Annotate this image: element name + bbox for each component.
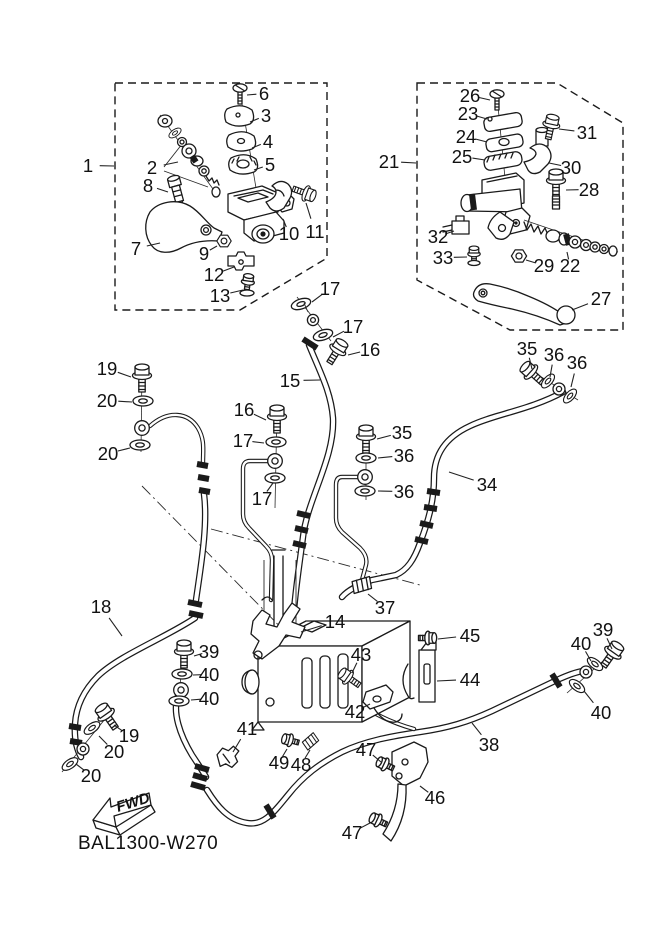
piston-kit-22 (524, 220, 618, 256)
part-number-22: 22 (560, 255, 581, 276)
cap-plate-4 (227, 132, 256, 151)
screw-33 (468, 246, 480, 265)
parts-diagram-canvas: FWD BAL1300-W270 12634587910111213172126… (0, 0, 661, 935)
part-number-18: 18 (91, 596, 112, 617)
part-number-16: 16 (360, 339, 381, 360)
part-number-30: 30 (561, 157, 582, 178)
brake-hose-18 (69, 415, 210, 757)
part-number-43: 43 (351, 644, 372, 665)
part-number-36: 36 (394, 481, 415, 502)
callout-leader-line (118, 372, 131, 377)
callout-leader-line (348, 352, 360, 355)
part-number-47: 47 (342, 822, 363, 843)
parts-diagram-page: FWD BAL1300-W270 12634587910111213172126… (0, 0, 661, 935)
left-banjo-stack-19-20 (130, 364, 153, 452)
callout-leader-line (572, 304, 588, 310)
part-number-9: 9 (199, 243, 209, 264)
part-number-29: 29 (534, 255, 555, 276)
piston-kit (158, 115, 220, 197)
clamp-48 (301, 733, 319, 750)
brake-lever-7 (146, 202, 222, 253)
pivot-nut-9 (217, 235, 231, 247)
part-number-4: 4 (263, 131, 273, 152)
callout-leader-line (210, 246, 217, 250)
part-number-6: 6 (259, 83, 269, 104)
part-number-17: 17 (252, 488, 273, 509)
part-number-5: 5 (265, 154, 275, 175)
reservoir-cap-23 (483, 112, 523, 132)
clamp-41 (216, 744, 243, 770)
bolt-45 (419, 631, 437, 645)
part-number-36: 36 (544, 344, 565, 365)
part-number-17: 17 (343, 316, 364, 337)
holder-bolt-11 (290, 181, 318, 204)
part-number-40: 40 (591, 702, 612, 723)
callout-leader-line (118, 401, 132, 402)
brake-hoses (69, 339, 583, 823)
reservoir-screw-6 (233, 84, 247, 104)
part-number-35: 35 (517, 338, 538, 359)
cap-plate-24 (485, 133, 524, 152)
callout-leader-line (438, 637, 456, 639)
part-number-24: 24 (456, 126, 477, 147)
part-number-11: 11 (305, 221, 324, 242)
part-number-39: 39 (199, 641, 220, 662)
callout-leader-line (571, 374, 574, 388)
diaphragm-5 (229, 155, 258, 174)
callout-leader-line (449, 472, 474, 480)
bracket-46 (383, 742, 428, 841)
pivot-nut-29 (511, 250, 526, 262)
part-number-17: 17 (233, 430, 254, 451)
part-number-41: 41 (237, 718, 258, 739)
callout-leader-line (472, 158, 485, 160)
part-number-8: 8 (143, 175, 153, 196)
part-number-36: 36 (567, 352, 588, 373)
callout-leader-line (157, 188, 168, 192)
hose-clamp-37 (352, 577, 372, 594)
part-number-42: 42 (345, 701, 366, 722)
part-number-10: 10 (279, 223, 300, 244)
part-number-20: 20 (104, 741, 125, 762)
front-master-cylinder-assembly (146, 84, 318, 296)
part-number-20: 20 (97, 390, 118, 411)
part-number-46: 46 (425, 787, 446, 808)
callout-leader-line (559, 129, 574, 131)
callout-leader-line (479, 98, 490, 101)
part-number-23: 23 (458, 103, 479, 124)
part-number-37: 37 (375, 597, 396, 618)
part-number-20: 20 (81, 765, 102, 786)
part-number-47: 47 (356, 739, 377, 760)
callout-leader-line (164, 162, 178, 165)
part-number-19: 19 (97, 358, 118, 379)
union-bolt-16-top (322, 336, 351, 368)
callout-leader-line (254, 414, 266, 420)
part-number-40: 40 (571, 633, 592, 654)
callout-leader-line (437, 680, 456, 681)
part-number-32: 32 (428, 226, 449, 247)
callout-leader-line (549, 163, 561, 166)
assembly-boxes (115, 83, 623, 649)
part-number-7: 7 (131, 238, 141, 259)
diaphragm-25 (483, 151, 523, 171)
part-number-38: 38 (479, 734, 500, 755)
callout-leader-line (306, 203, 311, 219)
callout-leader-line (118, 448, 130, 451)
part-number-15: 15 (280, 370, 301, 391)
part-number-13: 13 (210, 285, 231, 306)
diagram-code: BAL1300-W270 (78, 833, 218, 854)
part-number-36: 36 (394, 445, 415, 466)
part-number-45: 45 (460, 625, 481, 646)
part-number-20: 20 (98, 443, 119, 464)
center-right-stack-35-36 (355, 425, 376, 500)
reservoir-cap-3 (225, 106, 254, 126)
part-number-27: 27 (591, 288, 612, 309)
callout-leader-line (377, 435, 391, 439)
part-number-39: 39 (593, 619, 614, 640)
fwd-direction-arrow: FWD (93, 790, 155, 835)
part-number-40: 40 (199, 688, 220, 709)
part-number-34: 34 (477, 474, 498, 495)
part-number-17: 17 (320, 278, 341, 299)
brake-hose-34 (342, 392, 563, 597)
callout-leader-line (401, 162, 416, 163)
part-number-28: 28 (579, 179, 600, 200)
callout-leader-line (223, 267, 234, 271)
lower-left-stack-39-40 (169, 640, 194, 706)
part-number-49: 49 (269, 752, 290, 773)
part-number-31: 31 (577, 122, 598, 143)
part-number-35: 35 (392, 422, 413, 443)
callout-leader-line (247, 94, 256, 95)
callout-leader-line (109, 618, 122, 636)
part-number-callouts: 1263458791011121317212623242531302832332… (76, 83, 613, 843)
screw-13 (240, 273, 255, 296)
part-number-40: 40 (199, 664, 220, 685)
part-number-3: 3 (261, 105, 271, 126)
part-number-25: 25 (452, 146, 473, 167)
union-washers-17 (290, 296, 334, 343)
part-number-48: 48 (291, 754, 312, 775)
part-number-33: 33 (433, 247, 454, 268)
part-number-16: 16 (234, 399, 255, 420)
part-number-1: 1 (83, 155, 93, 176)
part-number-12: 12 (204, 264, 225, 285)
part-number-21: 21 (379, 151, 400, 172)
bolt-49 (280, 732, 300, 749)
reservoir-screw-26 (490, 90, 504, 110)
part-number-44: 44 (460, 669, 481, 690)
part-number-14: 14 (325, 611, 346, 632)
callout-leader-line (252, 442, 264, 443)
callout-leader-line (378, 457, 392, 458)
callout-leader-line (475, 139, 487, 142)
